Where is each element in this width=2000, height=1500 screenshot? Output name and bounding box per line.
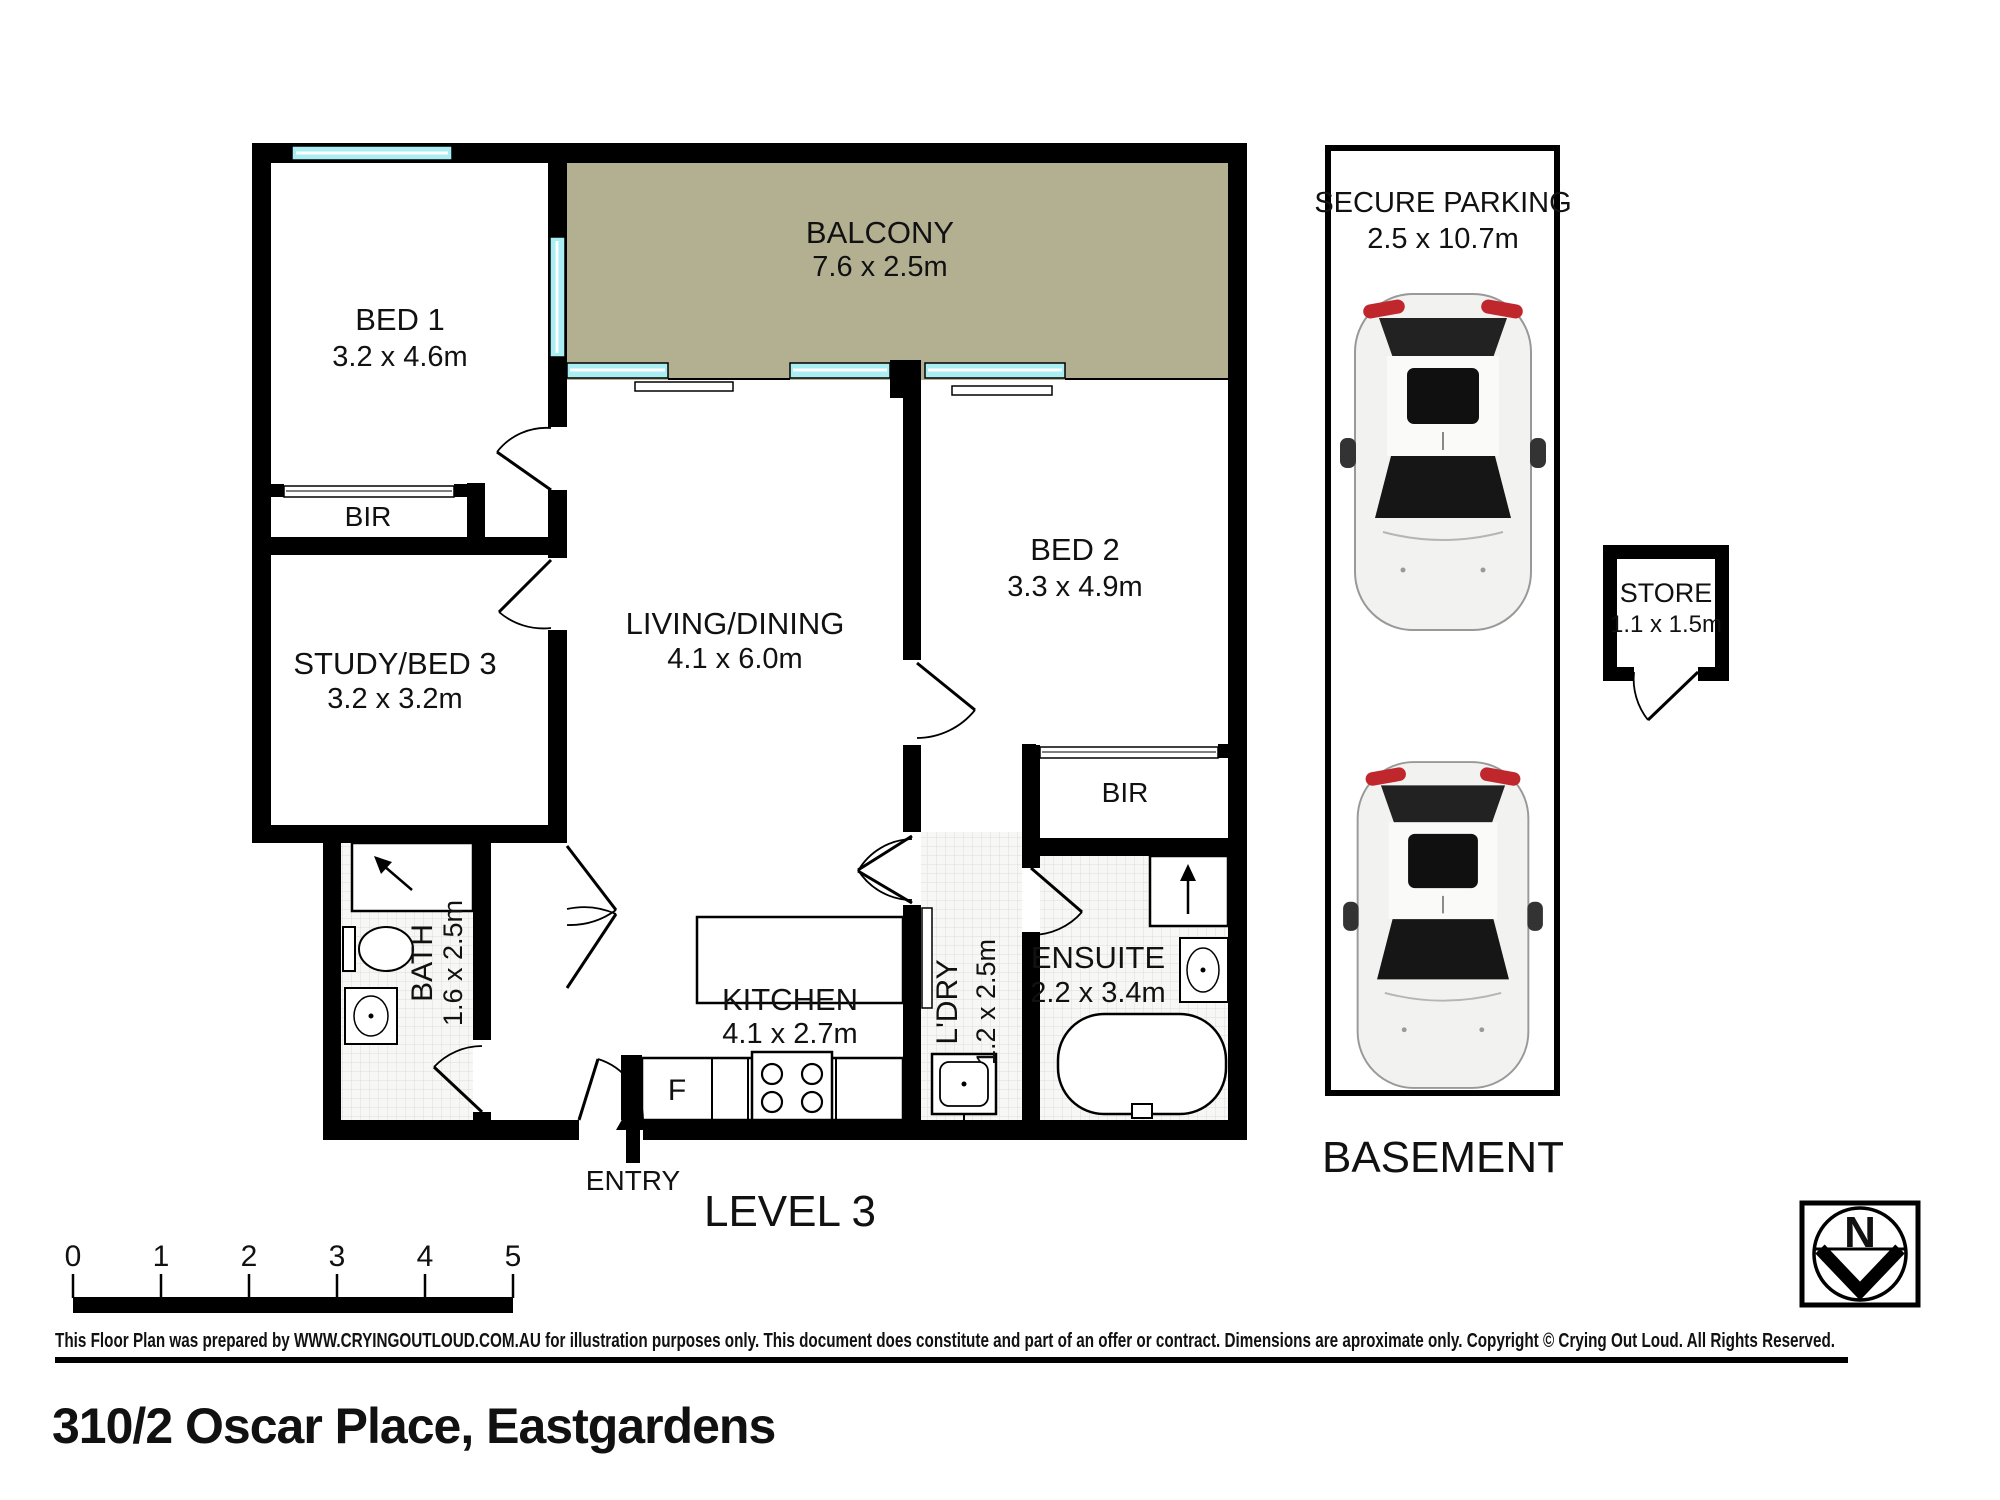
fridge-label: F <box>668 1074 686 1107</box>
north-arrow-icon: N <box>1802 1203 1918 1305</box>
room-label-bed1: BED 1 <box>355 302 445 337</box>
address-title: 310/2 Oscar Place, Eastgardens <box>52 1398 775 1454</box>
scale-tick-label: 2 <box>241 1240 258 1273</box>
room-dims-kitchen: 4.1 x 2.7m <box>722 1018 857 1050</box>
level-label: LEVEL 3 <box>704 1187 876 1236</box>
sliding-door-track <box>635 382 733 391</box>
footer: This Floor Plan was prepared by WWW.CRYI… <box>52 1330 1848 1454</box>
toilet <box>343 927 355 971</box>
floorplan-canvas: F <box>0 0 2000 1500</box>
room-dims-bed1: 3.2 x 4.6m <box>332 341 467 373</box>
stove <box>752 1052 832 1120</box>
room-label-bed2: BED 2 <box>1030 532 1120 567</box>
room-dims-ensuite: 2.2 x 3.4m <box>1030 977 1165 1009</box>
room-label-kitchen: KITCHEN <box>722 982 858 1017</box>
store-room: STORE 1.1 x 1.5m <box>1603 545 1729 720</box>
room-label-balcony: BALCONY <box>806 215 954 250</box>
room-dims-study: 3.2 x 3.2m <box>327 683 462 715</box>
disclaimer-text: This Floor Plan was prepared by WWW.CRYI… <box>55 1330 1835 1352</box>
room-dims-laundry: 1.2 x 2.5m <box>971 939 1001 1065</box>
bathtub <box>1058 1014 1226 1114</box>
car-top-view <box>1340 294 1546 630</box>
basement-label: BASEMENT <box>1322 1133 1564 1182</box>
door-arc-bed2 <box>917 710 975 738</box>
door-arc-study <box>499 612 551 628</box>
scale-tick-label: 4 <box>417 1240 434 1273</box>
room-label-living: LIVING/DINING <box>626 606 845 641</box>
room-label-laundry: L'DRY <box>931 959 964 1044</box>
scale-tick-label: 0 <box>65 1240 82 1273</box>
door-arc-bed1 <box>497 428 551 452</box>
floorplan-page: F <box>0 0 2000 1500</box>
scale-tick-label: 5 <box>505 1240 522 1273</box>
room-dims-bath: 1.6 x 2.5m <box>438 900 468 1026</box>
room-dims-bed2: 3.3 x 4.9m <box>1007 571 1142 603</box>
room-dims-living: 4.1 x 6.0m <box>667 643 802 675</box>
bathtub-tap <box>1132 1104 1152 1118</box>
parking-bay: SECURE PARKING 2.5 x 10.7m BASEMENT <box>1314 148 1571 1182</box>
sliding-door-track <box>952 386 1052 395</box>
footer-divider <box>55 1357 1848 1363</box>
room-label-ensuite: ENSUITE <box>1031 940 1165 975</box>
scale-tick-label: 1 <box>153 1240 170 1273</box>
room-label-bath: BATH <box>406 924 439 1002</box>
apartment-level3: F <box>252 143 1247 1236</box>
parking-dims: 2.5 x 10.7m <box>1367 223 1519 255</box>
scale-tick-label: 3 <box>329 1240 346 1273</box>
room-label-study: STUDY/BED 3 <box>293 646 496 681</box>
car-top-view <box>1343 762 1543 1088</box>
entry-label: ENTRY <box>586 1165 681 1196</box>
scale-bar: 0 1 2 3 4 5 <box>65 1240 522 1313</box>
store-label: STORE <box>1620 578 1713 608</box>
parking-title: SECURE PARKING <box>1314 187 1571 219</box>
room-label-bir-right: BIR <box>1102 777 1149 808</box>
door-arc-hall-2 <box>567 907 616 914</box>
room-label-bir-left: BIR <box>345 501 392 532</box>
store-dims: 1.1 x 1.5m <box>1610 611 1722 638</box>
room-dims-balcony: 7.6 x 2.5m <box>812 251 947 283</box>
scale-bar-rule <box>73 1297 513 1313</box>
